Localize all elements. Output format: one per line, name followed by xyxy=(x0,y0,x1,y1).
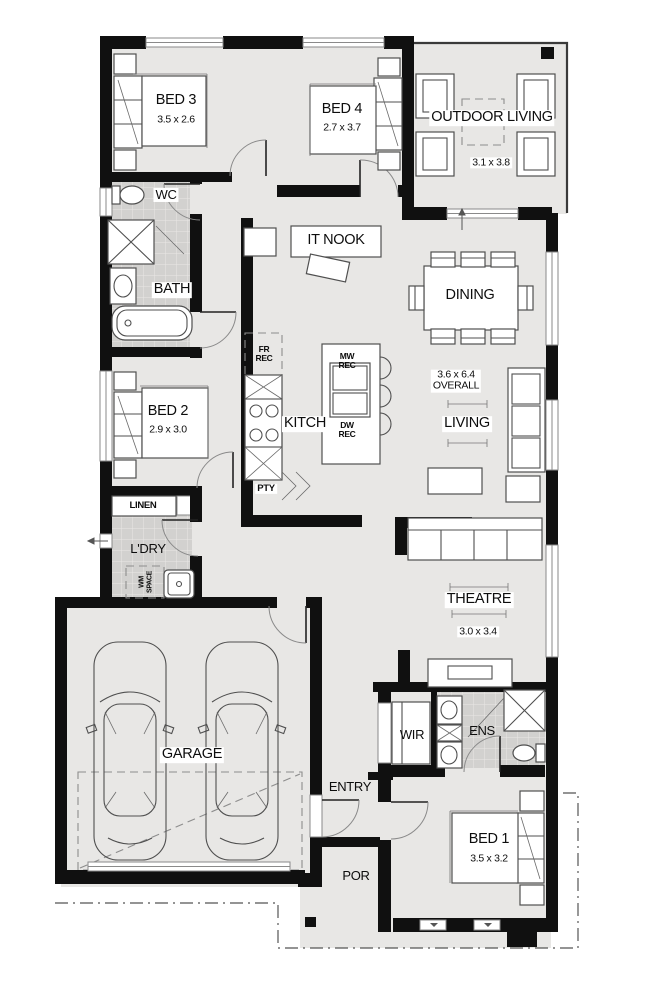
room-label-theatre: THEATRE xyxy=(445,592,514,608)
porch-post xyxy=(305,917,316,927)
room-label-dining: DINING xyxy=(444,288,497,304)
room-label-it-nook: IT NOOK xyxy=(305,233,366,249)
room-label-porch: POR xyxy=(340,869,371,883)
room-label-pantry: PTY xyxy=(255,484,277,494)
wc-fixtures xyxy=(112,186,144,204)
outdoor-post xyxy=(541,47,554,59)
room-label-wir: WIR xyxy=(398,728,426,742)
room-label-bath: BATH xyxy=(152,282,192,298)
room-label-entry: ENTRY xyxy=(327,780,373,794)
room-label-linen: LINEN xyxy=(127,501,158,511)
front-door xyxy=(310,795,322,837)
room-label-living: LIVING xyxy=(442,416,492,432)
room-label-garage: GARAGE xyxy=(160,747,224,763)
label-microwave-recess: MW REC xyxy=(336,352,357,370)
room-label-bed2: BED 2 xyxy=(146,404,190,420)
room-dims-bed1: 3.5 x 3.2 xyxy=(468,853,510,864)
floor-plan-drawing xyxy=(0,0,650,1000)
room-dims-bed2: 2.9 x 3.0 xyxy=(147,424,189,435)
room-dims-theatre: 3.0 x 3.4 xyxy=(457,626,499,637)
room-dims-living-overall: 3.6 x 6.4 OVERALL xyxy=(431,370,481,393)
room-label-kitchen: KITCH xyxy=(282,416,328,432)
room-label-ens: ENS xyxy=(467,724,497,738)
floor-plan: BED 3 3.5 x 2.6 BED 4 2.7 x 3.7 OUTDOOR … xyxy=(0,0,650,1000)
tv-unit xyxy=(428,659,512,687)
room-label-bed3: BED 3 xyxy=(154,93,198,109)
room-label-laundry: L'DRY xyxy=(128,542,167,556)
room-label-bed1: BED 1 xyxy=(467,832,511,848)
label-fridge-recess: FR REC xyxy=(253,345,274,363)
label-dishwasher-recess: DW REC xyxy=(336,421,357,439)
room-label-wc: WC xyxy=(153,188,178,202)
room-label-outdoor-living: OUTDOOR LIVING xyxy=(429,110,554,126)
room-dims-outdoor-living: 3.1 x 3.8 xyxy=(470,157,512,168)
room-dims-bed3: 3.5 x 2.6 xyxy=(155,114,197,125)
room-label-bed4: BED 4 xyxy=(320,102,364,118)
label-wm-space: WM SPACE xyxy=(138,569,153,595)
room-dims-bed4: 2.7 x 3.7 xyxy=(321,122,363,133)
